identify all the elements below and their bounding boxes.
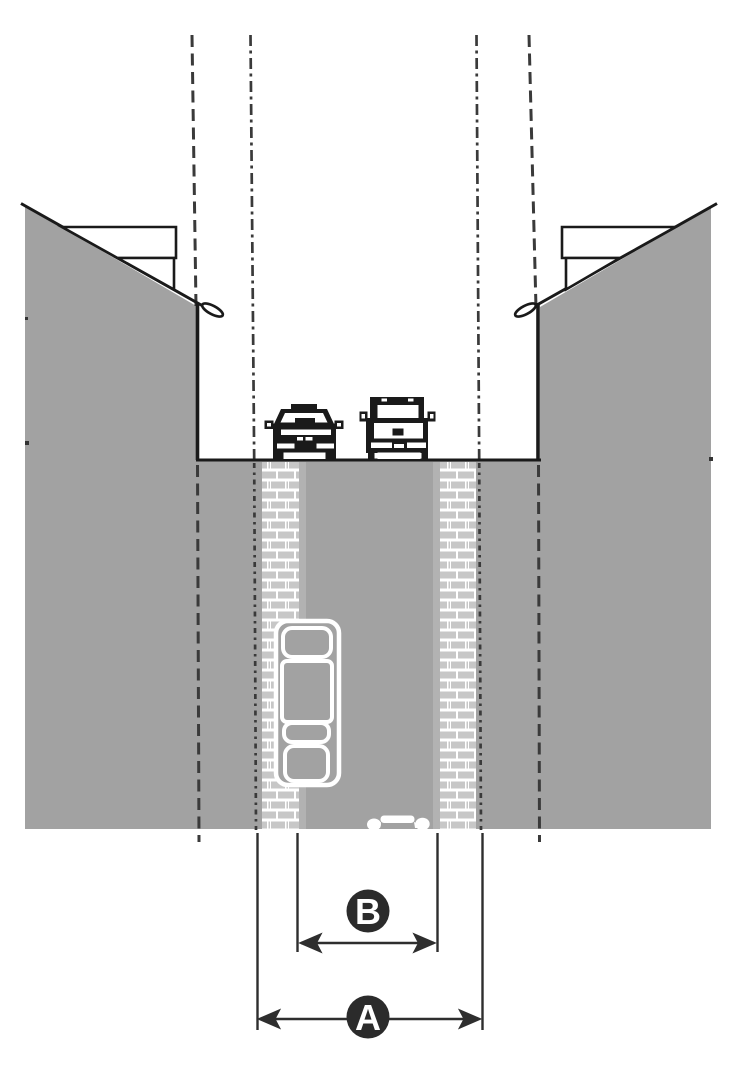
svg-text:B: B (355, 891, 381, 932)
svg-text:A: A (355, 997, 381, 1038)
